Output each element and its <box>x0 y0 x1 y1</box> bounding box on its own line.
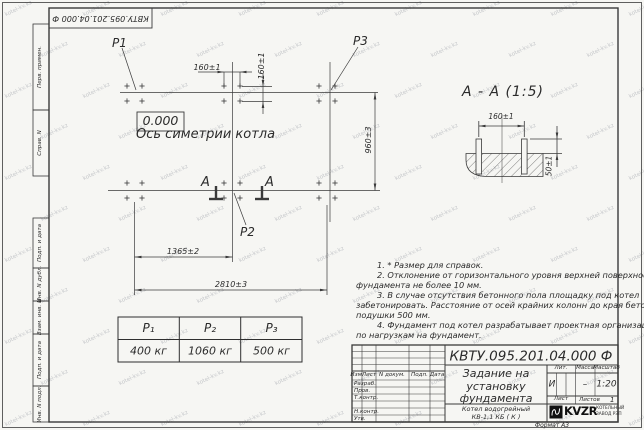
note-line-5: забетонировать. Расстояние от осей крайн… <box>356 301 644 309</box>
strip-label-podp-data-1: Подп. и дата <box>38 224 44 262</box>
section-dim-160: 160±1 <box>488 113 513 121</box>
drawing-linework <box>0 0 644 430</box>
format-note: Формат А3 <box>535 423 569 429</box>
sheet-label: Лист <box>554 397 568 403</box>
dim-top-vertical: 160±1 <box>258 52 266 79</box>
sheets-value: 1 <box>610 397 614 404</box>
note-line-6: подушки 500 мм. <box>356 311 430 319</box>
loads-value-p1: 400 кг <box>130 346 167 357</box>
strip-label-inv-podl: Инв. N подл. <box>38 386 44 423</box>
strip-label-sprav-n: Справ. N <box>38 130 44 156</box>
kvzr-logo-icon <box>550 406 563 419</box>
doc-title-line-2: установку <box>466 381 525 392</box>
row-nkontr: Н.контр. <box>354 410 379 416</box>
header-podp: Подп. <box>411 373 428 379</box>
lit-header: Лит. <box>555 366 568 372</box>
note-line-7: 4. Фундамент под котел разрабатывает про… <box>377 321 644 329</box>
dim-half-1365: 1365±2 <box>167 248 199 256</box>
kvzr-logo-sub2: ЗАВОД РЭП <box>596 413 622 417</box>
header-data: Дата <box>430 373 444 379</box>
loads-header-p2: P₂ <box>204 322 216 334</box>
doc-title-line-1: Задание на <box>463 368 530 379</box>
scale-header: Масштаб <box>593 366 620 372</box>
section-letter-right: A <box>265 176 274 189</box>
header-list: Лист <box>362 373 376 379</box>
mass-value: – <box>583 380 588 389</box>
strip-label-podp-data-2: Подп. и дата <box>38 341 44 379</box>
row-razrab: Разраб. <box>354 382 376 388</box>
strip-label-perv-primen: Перв. примен. <box>38 46 44 88</box>
note-line-1: 1. * Размер для справок. <box>377 261 483 269</box>
row-tkontr: Т.контр. <box>354 396 378 402</box>
plan-view <box>108 47 380 295</box>
dim-height-960: 960±3 <box>365 126 373 153</box>
point-label-p3: P3 <box>353 35 368 47</box>
note-line-4: 3. В случае отсутствия бетонного пола пл… <box>377 291 639 299</box>
scale-value: 1:20 <box>596 380 616 389</box>
note-line-3: фундамента не более 10 мм. <box>356 281 482 289</box>
doc-number-inverted: КВТУ.095.201.04.000 Ф <box>49 8 152 28</box>
doc-title-line-3: фундамента <box>460 393 533 404</box>
note-line-8: по нагрузкам на фундамент. <box>356 331 482 339</box>
loads-header-p3: P₃ <box>265 322 277 334</box>
loads-value-p2: 1060 кг <box>188 346 232 357</box>
gost-drawing-sheet: { "watermark": { "text": "kotel-kv.kz" }… <box>0 0 644 430</box>
kvzr-logo-sub1: КОТЕЛЬНЫЙ <box>596 407 624 411</box>
strip-label-inv-dubl: Инв. N дубл. <box>38 266 44 303</box>
point-label-p1: P1 <box>112 37 127 49</box>
header-n-dokum: N докум. <box>379 373 405 379</box>
kvzr-logo-text: KVZR <box>564 406 597 418</box>
loads-value-p3: 500 кг <box>253 346 290 357</box>
dim-full-2810: 2810±3 <box>215 281 247 289</box>
section-title: A - A (1:5) <box>462 85 544 99</box>
anchor-bolts <box>124 83 337 200</box>
dim-top-horizontal: 160±1 <box>193 64 220 72</box>
point-label-p2: P2 <box>240 226 255 238</box>
title-block-doc-number: КВТУ.095.201.04.000 Ф <box>450 350 613 364</box>
axis-caption: Ось симетрии котла <box>136 128 275 141</box>
loads-header-p1: P₁ <box>142 322 154 334</box>
lit-value: И <box>549 380 556 389</box>
section-dim-50: 50±1 <box>545 156 553 177</box>
row-prov: Пров. <box>354 389 370 395</box>
row-utv: Утв. <box>354 417 366 423</box>
mass-header: Масса <box>576 366 594 372</box>
product-line-2: КВ-1,1 КБ ( К ) <box>472 414 521 421</box>
sheets-label: Листов <box>579 398 600 404</box>
section-letter-left: A <box>201 176 210 189</box>
note-line-2: 2. Отклонение от горизонтального уровня … <box>377 271 644 279</box>
strip-label-vzam-inv: Взам. инв. N <box>38 299 44 335</box>
